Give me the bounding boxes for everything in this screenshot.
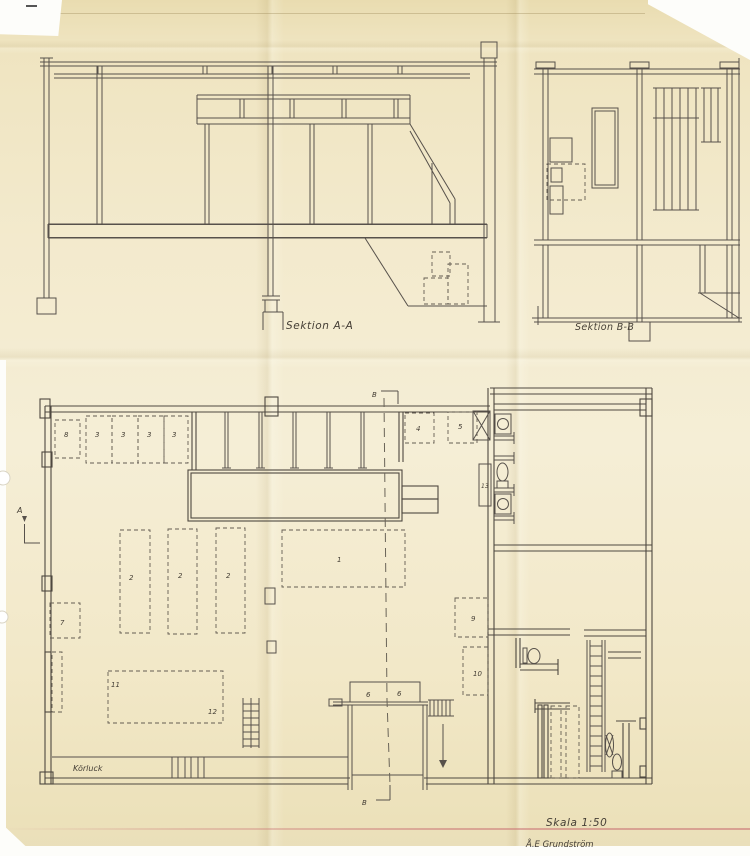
floor-plan-walls [40, 388, 652, 784]
plan-room-numbers: 8 3 3 3 3 4 5 13 1 2 2 2 7 9 10 11 12 6 … [60, 423, 489, 716]
room-number: 2 [129, 574, 134, 582]
room-number: 6 [366, 691, 371, 699]
floor-plan-details [22, 391, 622, 800]
punch-holes [0, 471, 10, 623]
section-marker-b-bottom: B [362, 799, 367, 807]
room-number: 6 [397, 690, 402, 698]
room-number: 12 [208, 708, 217, 716]
drawing-linework: Sektion A-A Sektion B-B Skala 1:50 Å.E G… [0, 0, 750, 856]
floor-plan-dashed-equipment [50, 412, 579, 778]
room-number: 13 [481, 483, 489, 490]
scale-label: Skala 1:50 [546, 817, 607, 829]
room-number: 9 [471, 615, 476, 623]
room-number: 2 [226, 572, 231, 580]
room-number: 4 [416, 425, 420, 433]
section-line-bb [384, 398, 390, 785]
drawing-sheet: Sektion A-A Sektion B-B Skala 1:50 Å.E G… [0, 0, 750, 856]
dock-label: Körluck [73, 764, 103, 773]
room-number: 3 [147, 431, 151, 439]
room-number: 5 [458, 423, 463, 431]
section-bb-title: Sektion B-B [575, 322, 634, 333]
section-aa-title: Sektion A-A [286, 320, 353, 332]
signature: Å.E Grundström [525, 838, 594, 850]
room-number: 2 [178, 572, 183, 580]
room-number: 3 [95, 431, 99, 439]
section-marker-b-top: B [372, 391, 377, 399]
section-aa-stored-boxes [424, 252, 468, 304]
room-number: 3 [121, 431, 125, 439]
section-bb-linework [532, 58, 742, 341]
section-aa-linework [37, 42, 500, 330]
room-number: 8 [64, 431, 69, 439]
room-number: 1 [337, 556, 341, 564]
section-marker-a: A [16, 506, 22, 515]
room-number: 3 [172, 431, 176, 439]
room-number: 7 [60, 619, 65, 627]
room-number: 11 [111, 681, 120, 689]
room-number: 10 [473, 670, 482, 678]
